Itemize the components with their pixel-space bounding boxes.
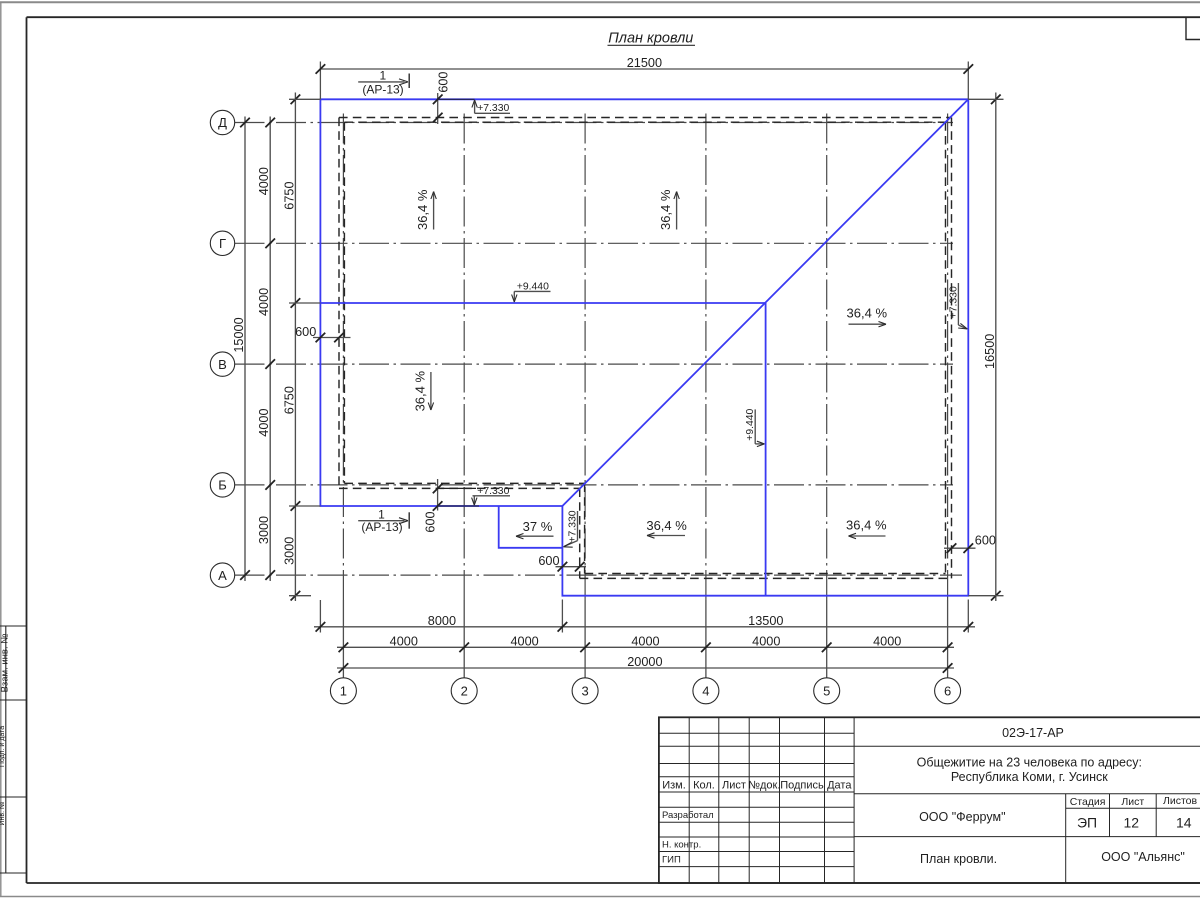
svg-text:36,4 %: 36,4 %: [847, 305, 888, 320]
svg-text:4000: 4000: [510, 634, 538, 648]
svg-text:Г: Г: [219, 236, 226, 251]
svg-text:Подп. и дата: Подп. и дата: [0, 726, 6, 767]
svg-text:Разработал: Разработал: [662, 810, 714, 821]
svg-text:В: В: [218, 357, 227, 372]
svg-text:4000: 4000: [873, 634, 901, 648]
svg-text:36,4 %: 36,4 %: [412, 371, 427, 412]
svg-text:4: 4: [702, 684, 709, 699]
svg-text:+7.330: +7.330: [477, 486, 509, 497]
svg-text:Б: Б: [218, 478, 227, 493]
svg-text:3000: 3000: [282, 537, 296, 565]
svg-text:А: А: [218, 568, 227, 583]
svg-text:2: 2: [461, 684, 468, 699]
svg-text:1: 1: [379, 68, 386, 82]
svg-text:План кровли: План кровли: [608, 31, 693, 47]
svg-text:02Э-17-АР: 02Э-17-АР: [1002, 726, 1064, 740]
svg-text:4000: 4000: [257, 288, 271, 316]
svg-text:600: 600: [538, 554, 559, 568]
svg-text:Лист: Лист: [1121, 796, 1144, 808]
svg-text:Инв. №: Инв. №: [0, 801, 6, 825]
svg-text:37 %: 37 %: [523, 519, 553, 534]
svg-text:Подпись: Подпись: [780, 780, 824, 792]
svg-text:6: 6: [944, 684, 951, 699]
svg-text:Кол.: Кол.: [693, 780, 715, 792]
svg-text:600: 600: [975, 534, 996, 548]
svg-text:4000: 4000: [631, 634, 659, 648]
svg-text:6750: 6750: [282, 181, 296, 209]
svg-text:Лист: Лист: [722, 780, 746, 792]
svg-text:№док.: №док.: [748, 780, 780, 792]
svg-text:Н. контр.: Н. контр.: [662, 839, 701, 850]
svg-text:План кровли.: План кровли.: [920, 852, 997, 866]
svg-text:36,4 %: 36,4 %: [846, 518, 887, 533]
svg-text:21500: 21500: [627, 56, 662, 70]
svg-text:12: 12: [1124, 814, 1140, 830]
svg-text:3: 3: [581, 684, 588, 699]
svg-text:ООО "Феррум": ООО "Феррум": [919, 810, 1005, 824]
svg-text:Взам. инв. №: Взам. инв. №: [0, 634, 11, 693]
svg-text:20000: 20000: [627, 655, 662, 669]
svg-text:16500: 16500: [983, 334, 997, 369]
svg-text:4000: 4000: [257, 408, 271, 436]
svg-text:4000: 4000: [752, 634, 780, 648]
svg-text:3000: 3000: [257, 516, 271, 544]
svg-text:+9.440: +9.440: [517, 281, 549, 292]
svg-text:Д: Д: [218, 115, 227, 130]
svg-text:13500: 13500: [748, 614, 783, 628]
svg-text:36,4 %: 36,4 %: [415, 189, 430, 230]
svg-text:14: 14: [1176, 814, 1192, 830]
svg-text:5: 5: [823, 684, 830, 699]
svg-text:Дата: Дата: [827, 780, 852, 792]
svg-text:Общежитие на 23 человека по ад: Общежитие на 23 человека по адресу:: [917, 756, 1142, 770]
svg-text:600: 600: [423, 511, 437, 532]
svg-text:ООО "Альянс": ООО "Альянс": [1101, 850, 1185, 864]
svg-text:600: 600: [295, 325, 316, 339]
svg-text:36,4 %: 36,4 %: [646, 518, 687, 533]
svg-text:+9.440: +9.440: [745, 408, 756, 440]
svg-text:1: 1: [340, 684, 347, 699]
svg-text:Республика Коми, г. Усинск: Республика Коми, г. Усинск: [951, 770, 1108, 784]
svg-text:Стадия: Стадия: [1070, 796, 1106, 808]
svg-text:ГИП: ГИП: [662, 855, 681, 866]
svg-text:15000: 15000: [232, 317, 246, 352]
svg-text:+7.330: +7.330: [477, 103, 509, 114]
svg-text:(АР-13): (АР-13): [362, 82, 403, 96]
svg-text:600: 600: [436, 72, 450, 93]
svg-text:4000: 4000: [390, 634, 418, 648]
svg-text:Листов: Листов: [1163, 795, 1198, 807]
svg-text:Изм.: Изм.: [662, 780, 686, 792]
svg-text:(АР-13): (АР-13): [361, 520, 402, 534]
svg-text:6750: 6750: [282, 386, 296, 414]
svg-text:ЭП: ЭП: [1077, 814, 1097, 830]
svg-text:8000: 8000: [428, 614, 456, 628]
svg-text:36,4 %: 36,4 %: [658, 189, 673, 230]
svg-text:4000: 4000: [257, 167, 271, 195]
